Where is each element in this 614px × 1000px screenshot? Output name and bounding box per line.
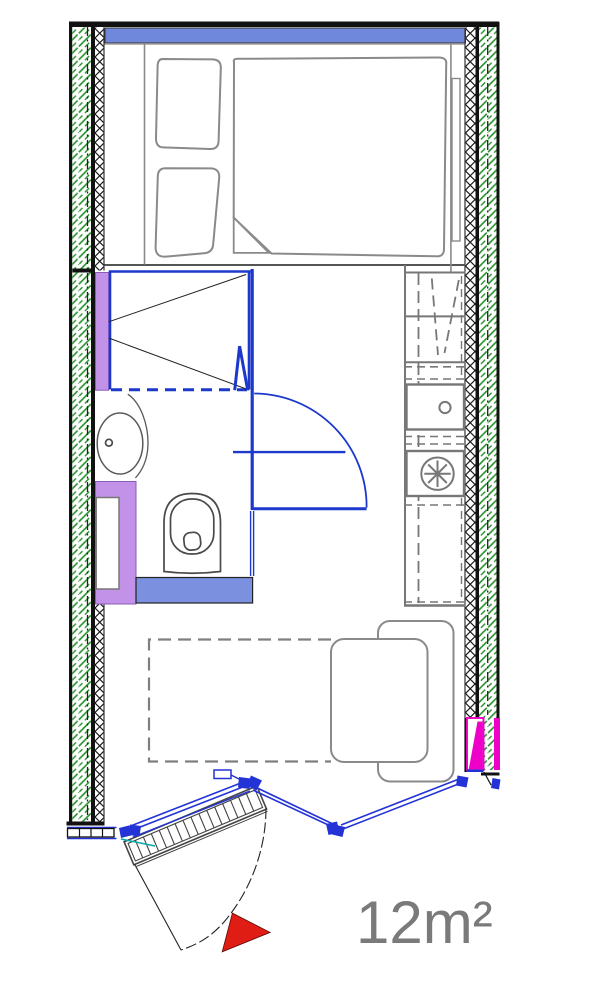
svg-text:12m²: 12m² — [356, 889, 493, 956]
